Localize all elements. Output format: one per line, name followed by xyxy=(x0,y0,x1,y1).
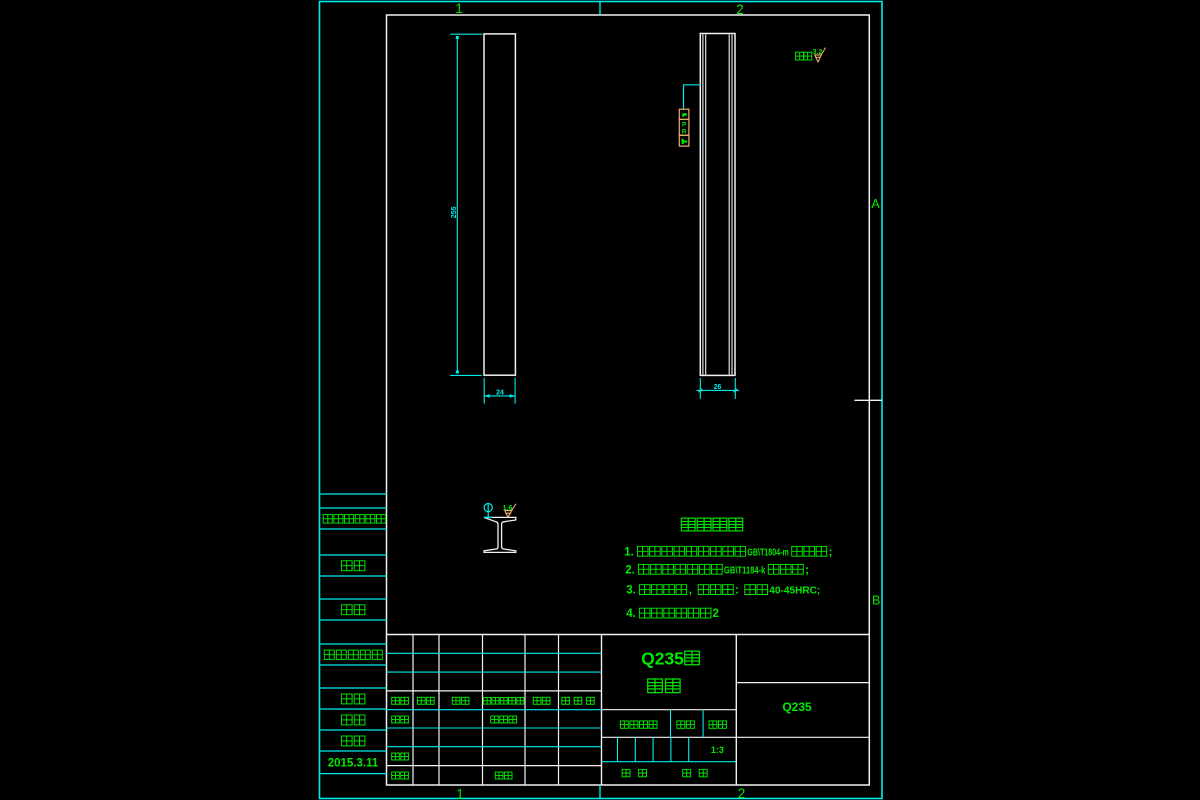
svg-text:2: 2 xyxy=(712,608,718,620)
svg-text:2015.3.11: 2015.3.11 xyxy=(328,757,379,769)
svg-text:3.: 3. xyxy=(626,585,636,597)
svg-text:40-45HRC;: 40-45HRC; xyxy=(769,585,820,597)
svg-text:255: 255 xyxy=(449,206,458,218)
svg-text:,: , xyxy=(689,585,692,597)
svg-text:2.: 2. xyxy=(625,564,635,576)
svg-text:R: R xyxy=(682,129,687,136)
svg-text:GB\T1184-k: GB\T1184-k xyxy=(724,565,766,576)
svg-text:1: 1 xyxy=(456,787,464,800)
svg-text:B: B xyxy=(872,594,880,608)
svg-text:Q235: Q235 xyxy=(641,648,684,668)
svg-text:Q235: Q235 xyxy=(782,700,812,714)
svg-text:1.: 1. xyxy=(624,546,634,558)
svg-text:24: 24 xyxy=(496,390,504,397)
svg-text:;: ; xyxy=(828,546,832,558)
svg-text:26: 26 xyxy=(714,384,722,391)
svg-text:1: 1 xyxy=(455,1,463,16)
svg-text:1:3: 1:3 xyxy=(711,745,724,755)
svg-text::: : xyxy=(735,585,739,597)
svg-text:2: 2 xyxy=(738,786,746,800)
svg-text:;: ; xyxy=(805,564,809,576)
svg-text:2: 2 xyxy=(736,2,744,17)
svg-text:4.: 4. xyxy=(626,608,636,620)
svg-text:P: P xyxy=(682,122,687,129)
svg-text:GB\T1804-m: GB\T1804-m xyxy=(747,547,789,558)
svg-text:A: A xyxy=(871,197,880,211)
